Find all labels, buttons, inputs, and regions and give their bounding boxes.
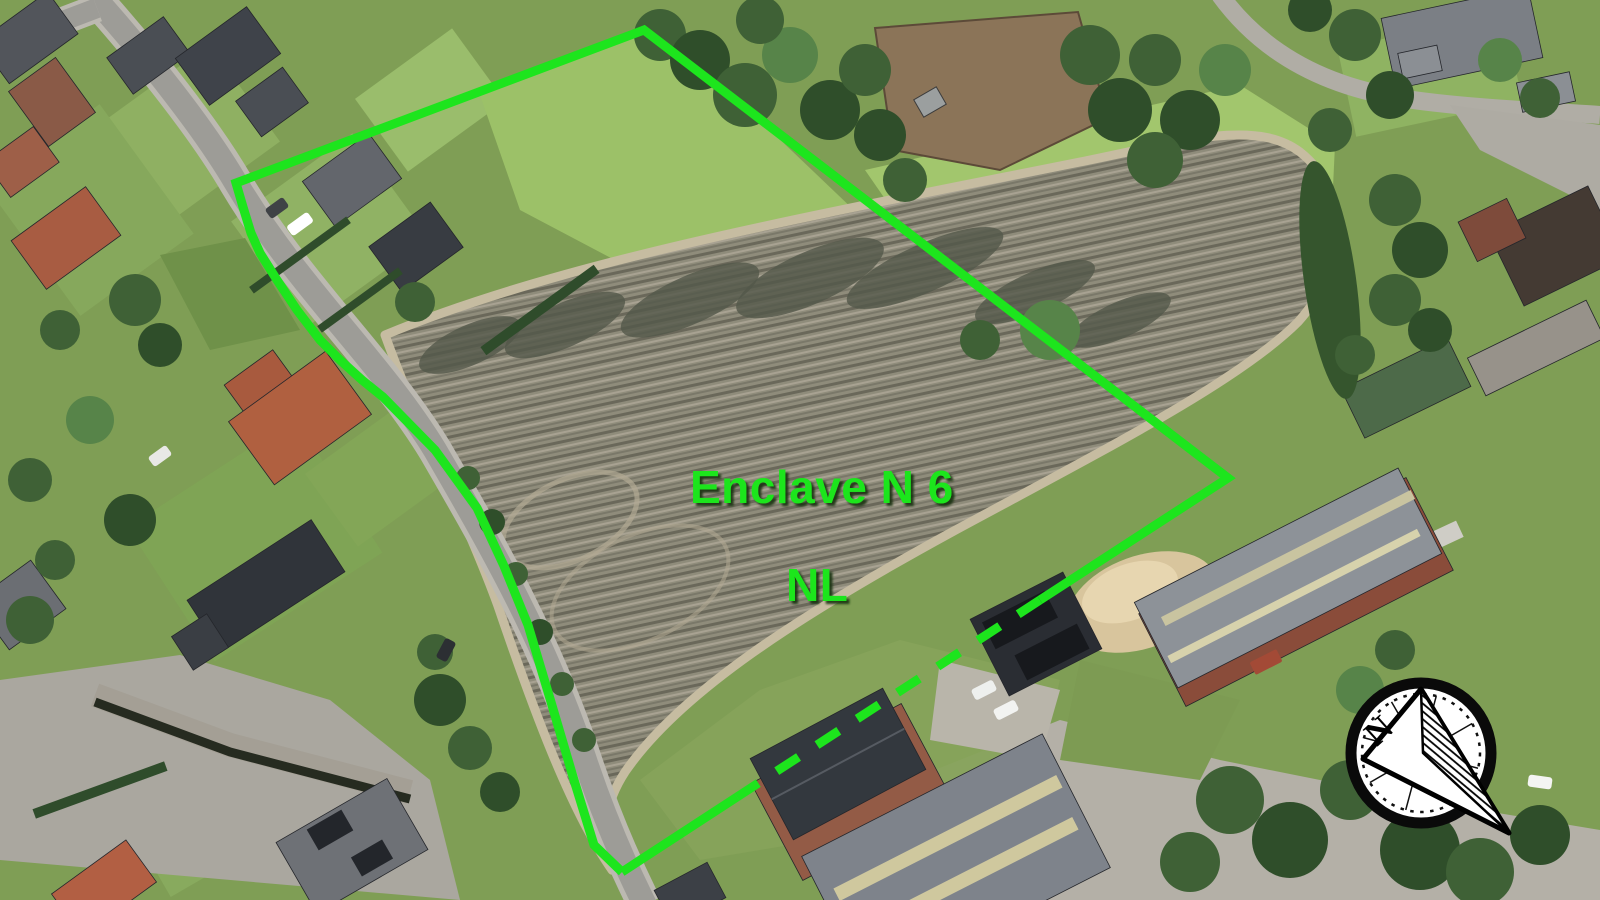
tree bbox=[1199, 44, 1251, 96]
tree bbox=[1478, 38, 1522, 82]
enclave-label: Enclave N 6 bbox=[690, 461, 954, 513]
aerial-scene: Enclave N 6 NL N bbox=[0, 0, 1600, 900]
tree bbox=[1160, 832, 1220, 892]
tree bbox=[480, 772, 520, 812]
tree bbox=[1252, 802, 1328, 878]
roadside-bush bbox=[550, 672, 574, 696]
tree bbox=[448, 726, 492, 770]
tree bbox=[1129, 34, 1181, 86]
tree bbox=[1366, 71, 1414, 119]
tree bbox=[1127, 132, 1183, 188]
tree bbox=[839, 44, 891, 96]
tree bbox=[40, 310, 80, 350]
tree bbox=[8, 458, 52, 502]
tree bbox=[138, 323, 182, 367]
country-label: NL bbox=[786, 559, 848, 611]
tree bbox=[1408, 308, 1452, 352]
tree bbox=[1392, 222, 1448, 278]
tree bbox=[854, 109, 906, 161]
tree bbox=[6, 596, 54, 644]
tree bbox=[1060, 25, 1120, 85]
tree bbox=[1329, 9, 1381, 61]
tree bbox=[1369, 174, 1421, 226]
tree bbox=[1375, 630, 1415, 670]
tree bbox=[35, 540, 75, 580]
tree bbox=[960, 320, 1000, 360]
tree bbox=[1510, 805, 1570, 865]
tree bbox=[1088, 78, 1152, 142]
tree bbox=[1520, 78, 1560, 118]
tree bbox=[414, 674, 466, 726]
tree bbox=[883, 158, 927, 202]
tree bbox=[104, 494, 156, 546]
aerial-photo-stage: Enclave N 6 NL N bbox=[0, 0, 1600, 900]
tree bbox=[1335, 335, 1375, 375]
roadside-bush bbox=[572, 728, 596, 752]
tree bbox=[1308, 108, 1352, 152]
tree bbox=[66, 396, 114, 444]
tree bbox=[395, 282, 435, 322]
tree bbox=[109, 274, 161, 326]
tree bbox=[1196, 766, 1264, 834]
